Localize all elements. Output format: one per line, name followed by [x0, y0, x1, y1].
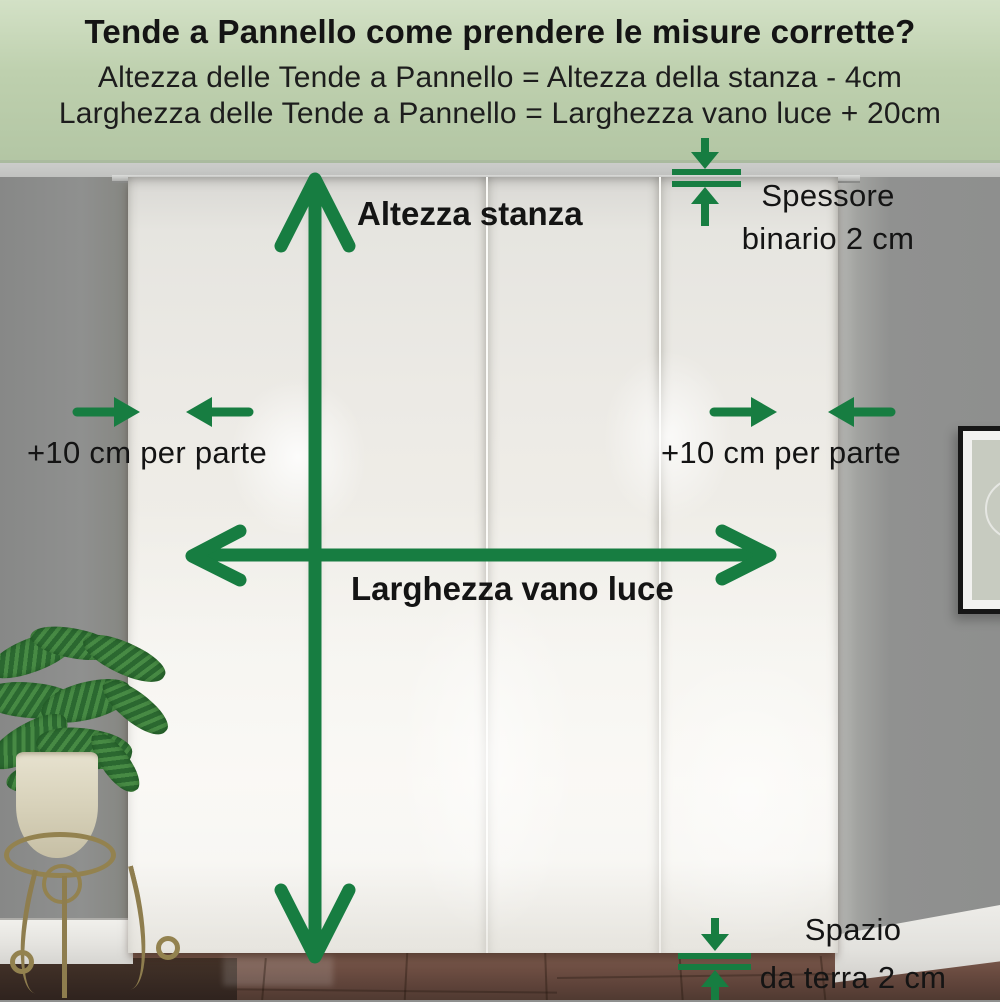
page-title: Tende a Pannello come prendere le misure… — [0, 13, 1000, 51]
tile-grout-line — [237, 988, 557, 993]
panel-curtains — [128, 177, 838, 953]
curtain-panel-2 — [314, 177, 486, 953]
picture-frame-mat — [963, 431, 1000, 609]
tile-grout-line — [404, 952, 409, 1000]
rail-thickness-label-line2: binario 2 cm — [723, 217, 933, 260]
left-side-margin-label: +10 cm per parte — [27, 435, 267, 471]
plant-stand-leg — [62, 876, 67, 998]
curtain-panel-4 — [659, 177, 839, 953]
plant-stand-foot — [10, 950, 34, 974]
curtain-panel-3 — [486, 177, 659, 953]
picture-frame — [958, 426, 1000, 614]
floor-gap-label: Spazio da terra 2 cm — [748, 906, 958, 1002]
window-width-label: Larghezza vano luce — [351, 570, 674, 608]
right-side-margin-label: +10 cm per parte — [661, 435, 901, 471]
plant-stand-leg — [98, 865, 162, 990]
floor-reflection — [223, 954, 333, 986]
potted-plant — [0, 620, 220, 1000]
room-height-label: Altezza stanza — [357, 195, 583, 233]
plant-stand-foot — [156, 936, 180, 960]
header-banner: Tende a Pannello come prendere le misure… — [0, 0, 1000, 163]
floor-gap-label-line2: da terra 2 cm — [748, 954, 958, 1002]
floor-gap-label-line1: Spazio — [748, 906, 958, 954]
picture-frame-art — [972, 440, 1000, 600]
width-formula-text: Larghezza delle Tende a Pannello = Largh… — [0, 96, 1000, 132]
rail-thickness-label-line1: Spessore — [723, 174, 933, 217]
plant-stand-leg — [4, 869, 68, 994]
rail-thickness-label: Spessore binario 2 cm — [723, 174, 933, 260]
height-formula-text: Altezza delle Tende a Pannello = Altezza… — [0, 60, 1000, 96]
